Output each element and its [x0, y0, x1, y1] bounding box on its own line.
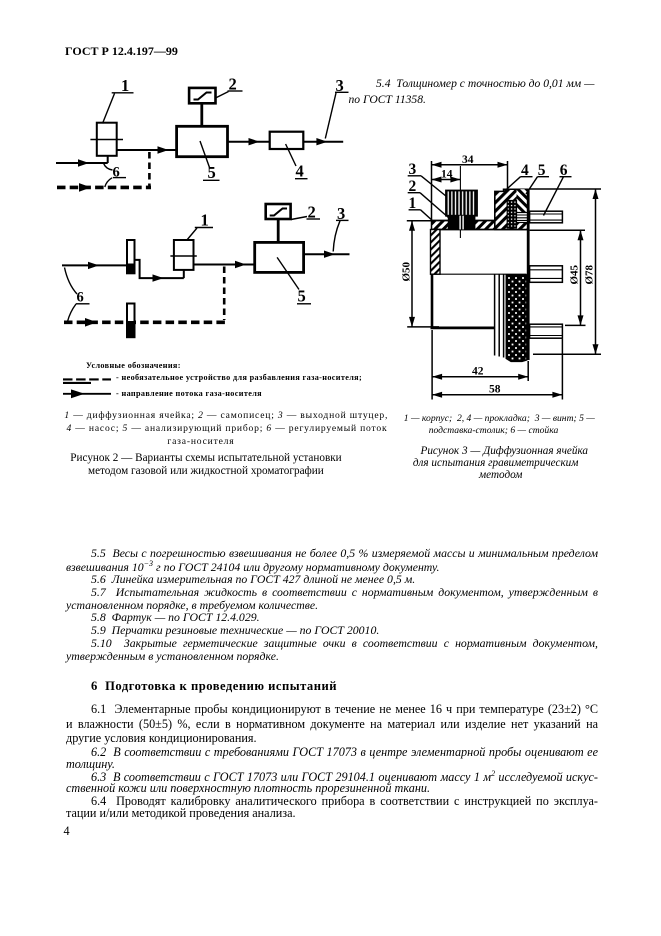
svg-text:Ø50: Ø50: [401, 261, 413, 281]
svg-text:34: 34: [462, 154, 474, 166]
svg-text:42: 42: [472, 366, 484, 378]
svg-text:1: 1: [201, 210, 209, 229]
svg-text:Ø78: Ø78: [584, 264, 596, 284]
svg-text:4: 4: [296, 162, 304, 181]
svg-text:Ø45: Ø45: [569, 264, 581, 284]
svg-text:58: 58: [489, 384, 501, 396]
svg-text:14: 14: [441, 169, 453, 181]
